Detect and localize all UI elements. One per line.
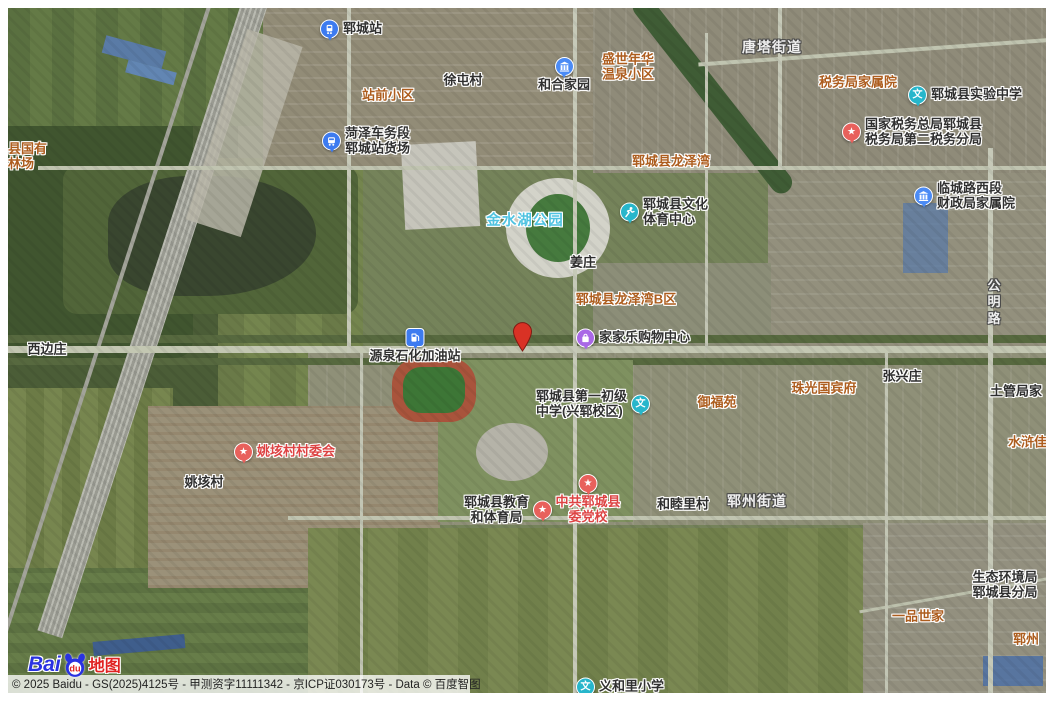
aoi-guoyou-linchang: 县国有林场 (8, 142, 47, 171)
aoi-longzewan-bqu-text: 郓城县龙泽湾B区 (576, 293, 676, 308)
baidu-paw-icon: du (62, 653, 88, 677)
park-jinshuihu-text: 金水湖公园 (486, 213, 564, 229)
shop-icon[interactable] (576, 329, 595, 348)
village-hemulicun-text: 和睦里村 (657, 498, 709, 513)
baidu-logo-text-bai: Bai (28, 653, 61, 677)
aoi-zhuguang-guobinfu-text: 珠光国宾府 (791, 382, 856, 397)
destination-marker[interactable] (512, 322, 533, 352)
poi-yaogaicun-weihui-text: 姚垓村村委会 (257, 445, 335, 460)
poi-shiyan-zhongxue[interactable]: 文郓城县实验中学 (908, 86, 1022, 105)
building-icon[interactable] (914, 187, 933, 206)
school-icon[interactable]: 文 (576, 678, 595, 694)
poi-wenhua-tiyu-zhongxin-text: 郓城县文化体育中心 (643, 197, 708, 226)
village-zhangxingzhuang-text: 张兴庄 (882, 370, 921, 385)
village-xibianzhuang-text: 西边庄 (27, 343, 66, 358)
poi-yuncheng-station-text: 郓城站 (343, 22, 382, 37)
star-icon[interactable]: ★ (578, 474, 597, 493)
poi-yuanquan-jiayouzhan[interactable]: 源泉石化加油站 (369, 328, 460, 364)
aoi-shuiwuju-jiashuyuan-text: 税务局家属院 (819, 76, 897, 91)
aoi-yipin-shijia-text: 一品世家 (892, 610, 944, 625)
poi-guojia-shuiwu-text: 国家税务总局郓城县税务局第二税务分局 (865, 117, 982, 146)
village-jiangzhuang: 姜庄 (570, 256, 596, 271)
aoi-shengshi-nianhua: 盛世年华温泉小区 (602, 52, 654, 81)
poi-yuncheng-station[interactable]: 郓城站 (320, 20, 382, 39)
village-jiangzhuang-text: 姜庄 (570, 256, 596, 271)
park-jinshuihu: 金水湖公园 (486, 213, 564, 229)
aoi-zhuguang-guobinfu: 珠光国宾府 (791, 382, 856, 397)
poi-jiaoyu-tiyuju-text: 郓城县教育和体育局 (464, 495, 529, 524)
town-tangta-jiedao-text: 唐塔街道 (742, 40, 802, 56)
poi-wenhua-tiyu-zhongxin[interactable]: 郓城县文化体育中心 (620, 197, 708, 226)
poi-weidangxiao-text: 中共郓城县委党校 (555, 495, 620, 524)
copyright-text: © 2025 Baidu - GS(2025)4125号 - 甲测资字11111… (12, 676, 481, 692)
poi-heze-freight-yard[interactable]: 菏泽车务段郓城站货场 (322, 126, 410, 155)
poi-caizhengju-jiashuyuan[interactable]: 临城路西段财政局家属院 (914, 181, 1015, 210)
town-yunzhou-jiedao-text: 郓州街道 (727, 494, 787, 510)
village-hemulicun: 和睦里村 (657, 498, 709, 513)
poi-diyi-chuji-zhongxue-text: 郓城县第一初级中学(兴郓校区) (536, 389, 627, 418)
village-tuguanju-jia-text: 土管局家 (990, 385, 1042, 400)
poi-jiaoyu-tiyuju[interactable]: ★郓城县教育和体育局 (464, 495, 552, 524)
poi-jiajiale-gouwu-text: 家家乐购物中心 (599, 331, 690, 346)
sports-icon[interactable] (620, 203, 639, 222)
baidu-logo[interactable]: Bai du 地图 (28, 652, 121, 677)
aoi-longzewan: 郓城县龙泽湾 (632, 155, 710, 170)
bus-icon[interactable] (322, 132, 341, 151)
aoi-guoyou-linchang-text: 县国有林场 (8, 142, 47, 171)
school-icon[interactable]: 文 (631, 395, 650, 414)
poi-guojia-shuiwu[interactable]: ★国家税务总局郓城县税务局第二税务分局 (842, 117, 982, 146)
village-xutuncun: 徐屯村 (443, 74, 482, 89)
poi-yihelixiaoxue-text: 义和里小学 (599, 680, 664, 693)
road-gongminglu-text: 公明路 (987, 278, 1000, 327)
aoi-shuihu-jiayuan: 水浒佳苑 (1008, 436, 1046, 451)
star-icon[interactable]: ★ (533, 501, 552, 520)
aoi-yufuyuan: 御福苑 (697, 396, 736, 411)
town-yunzhou-jiedao: 郓州街道 (727, 494, 787, 510)
village-xutuncun-text: 徐屯村 (443, 74, 482, 89)
aoi-yufuyuan-text: 御福苑 (697, 396, 736, 411)
village-yaogaicun-text: 姚垓村 (184, 476, 223, 491)
copyright-bar: © 2025 Baidu - GS(2025)4125号 - 甲测资字11111… (8, 675, 470, 693)
town-tangta-jiedao: 唐塔街道 (742, 40, 802, 56)
aoi-zhanqian-xiaoqu-text: 站前小区 (362, 89, 414, 104)
poi-diyi-chuji-zhongxue[interactable]: 文郓城县第一初级中学(兴郓校区) (536, 389, 650, 418)
aoi-yipin-shijia: 一品世家 (892, 610, 944, 625)
poi-jiajiale-gouwu[interactable]: 家家乐购物中心 (576, 329, 690, 348)
village-xibianzhuang: 西边庄 (27, 343, 66, 358)
road-gongminglu: 公明路 (987, 278, 1000, 327)
star-icon[interactable]: ★ (842, 123, 861, 142)
school-icon[interactable]: 文 (908, 86, 927, 105)
poi-shengtai-huanjingju[interactable]: 生态环境局郓城县分局 (972, 570, 1037, 599)
star-icon[interactable]: ★ (234, 443, 253, 462)
aoi-longzewan-bqu: 郓城县龙泽湾B区 (576, 293, 676, 308)
aoi-shengshi-nianhua-text: 盛世年华温泉小区 (602, 52, 654, 81)
map-canvas[interactable]: 郓城站菏泽车务段郓城站货场站前小区徐屯村和合家园盛世年华温泉小区唐塔街道税务局家… (8, 8, 1046, 693)
aoi-yunzhou-cut-text: 郓州 (1013, 633, 1039, 648)
building-icon[interactable] (554, 57, 573, 76)
village-tuguanju-jia: 土管局家 (990, 385, 1042, 400)
aoi-yunzhou-cut: 郓州 (1013, 633, 1039, 648)
poi-hehe-jiayuan[interactable]: 和合家园 (538, 57, 590, 93)
fuel-icon[interactable] (405, 328, 424, 347)
village-zhangxingzhuang: 张兴庄 (882, 370, 921, 385)
poi-yihelixiaoxue[interactable]: 文义和里小学 (576, 678, 664, 694)
village-yaogaicun: 姚垓村 (184, 476, 223, 491)
poi-shengtai-huanjingju-text: 生态环境局郓城县分局 (972, 570, 1037, 599)
aoi-longzewan-text: 郓城县龙泽湾 (632, 155, 710, 170)
aoi-shuiwuju-jiashuyuan: 税务局家属院 (819, 76, 897, 91)
aoi-shuihu-jiayuan-text: 水浒佳苑 (1008, 436, 1046, 451)
aoi-zhanqian-xiaoqu: 站前小区 (362, 89, 414, 104)
poi-yaogaicun-weihui[interactable]: ★姚垓村村委会 (234, 443, 335, 462)
baidu-logo-text-ditu: 地图 (89, 652, 121, 676)
train-icon[interactable] (320, 20, 339, 39)
poi-heze-freight-yard-text: 菏泽车务段郓城站货场 (345, 126, 410, 155)
poi-shiyan-zhongxue-text: 郓城县实验中学 (931, 88, 1022, 103)
svg-text:du: du (69, 664, 80, 674)
poi-caizhengju-jiashuyuan-text: 临城路西段财政局家属院 (937, 181, 1015, 210)
poi-weidangxiao[interactable]: ★中共郓城县委党校 (555, 474, 620, 524)
